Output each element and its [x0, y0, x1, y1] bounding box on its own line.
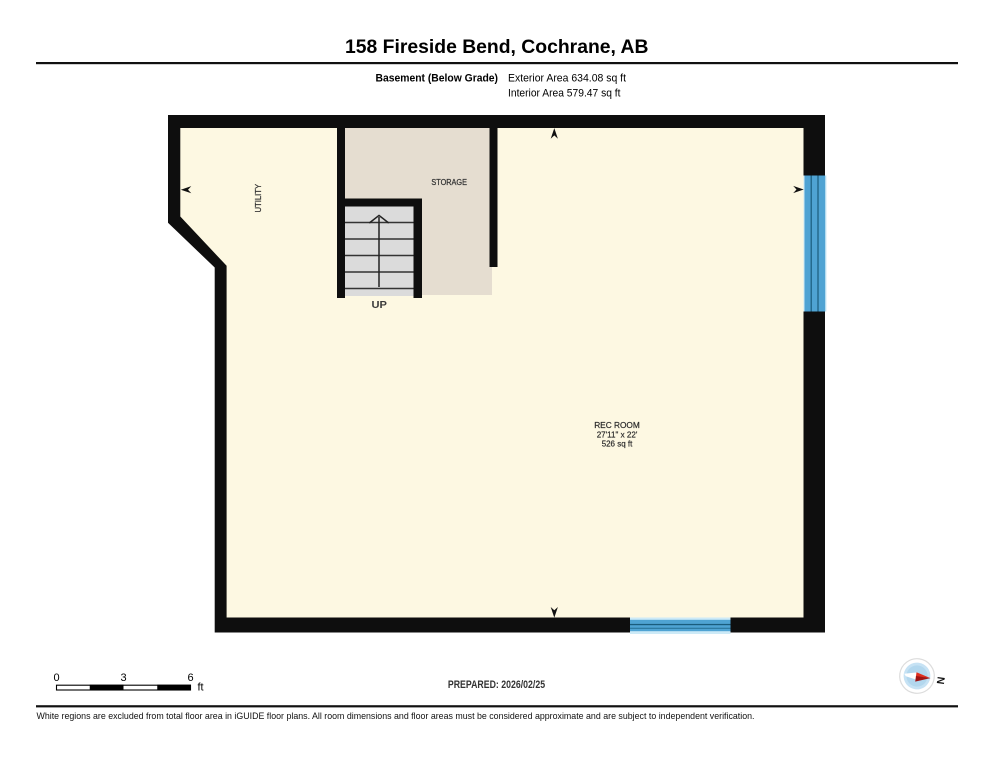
svg-text:6: 6: [187, 672, 193, 684]
svg-text:White regions are excluded fro: White regions are excluded from total fl…: [37, 711, 755, 722]
svg-text:3: 3: [120, 672, 126, 684]
svg-text:UP: UP: [372, 299, 387, 311]
svg-text:Basement (Below Grade): Basement (Below Grade): [376, 73, 499, 85]
svg-text:0: 0: [53, 672, 59, 684]
svg-text:N: N: [934, 676, 947, 685]
svg-text:Interior Area 579.47 sq ft: Interior Area 579.47 sq ft: [508, 88, 621, 100]
svg-text:526 sq ft: 526 sq ft: [602, 439, 633, 449]
svg-text:ft: ft: [198, 682, 204, 694]
svg-text:STORAGE: STORAGE: [431, 178, 467, 187]
svg-text:PREPARED: 2026/02/25: PREPARED: 2026/02/25: [448, 679, 545, 691]
svg-text:UTILITY: UTILITY: [254, 183, 263, 212]
svg-text:158 Fireside Bend, Cochrane, A: 158 Fireside Bend, Cochrane, AB: [345, 37, 649, 58]
svg-text:Exterior Area 634.08 sq ft: Exterior Area 634.08 sq ft: [508, 73, 626, 85]
